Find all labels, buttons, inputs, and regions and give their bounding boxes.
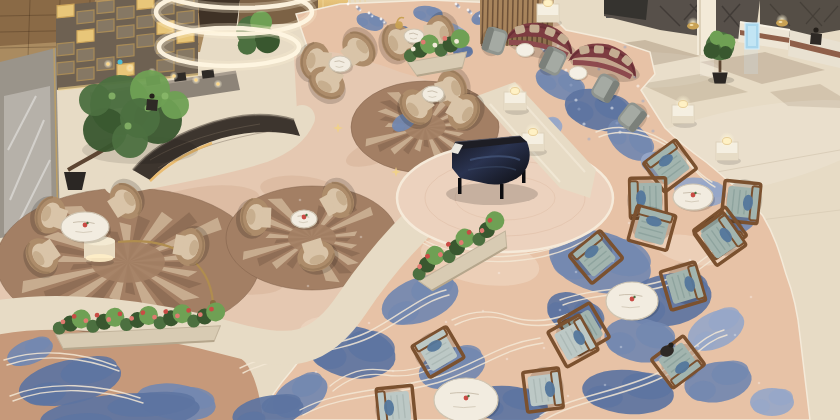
pedestal-lamp bbox=[544, 0, 553, 7]
glowing-pedestal bbox=[537, 0, 562, 27]
pedestal-lamp bbox=[679, 101, 688, 108]
tree-pot bbox=[712, 72, 727, 83]
pedestal-lamp bbox=[723, 138, 732, 145]
pedestal-lamp bbox=[511, 88, 520, 95]
lobby-scene bbox=[0, 0, 840, 420]
grand-piano bbox=[446, 136, 538, 205]
lobby-photo bbox=[0, 0, 840, 420]
bar-screen-light bbox=[118, 60, 123, 65]
gold-bowl-lamp bbox=[687, 17, 699, 30]
pedestal-lamp bbox=[529, 129, 538, 136]
gold-bowl-lamp bbox=[776, 14, 788, 27]
